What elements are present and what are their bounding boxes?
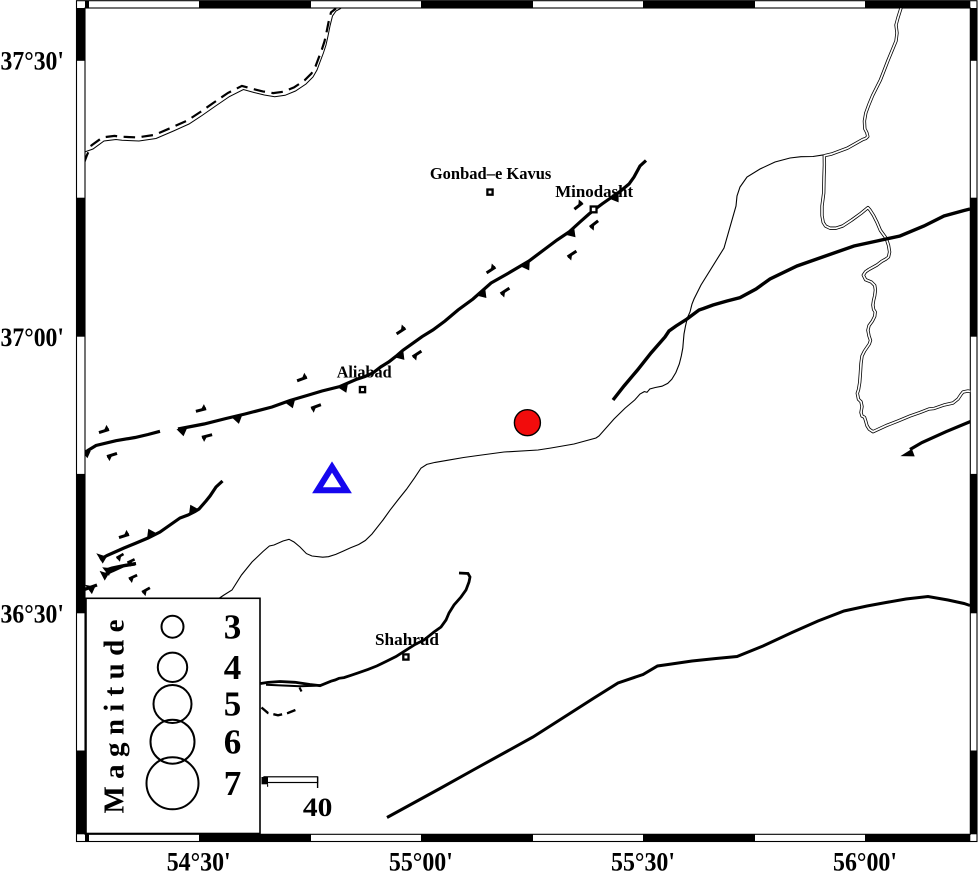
svg-text:6: 6 [224, 722, 242, 761]
svg-text:Gonbad–e Kavus: Gonbad–e Kavus [430, 164, 552, 183]
svg-text:40: 40 [303, 792, 333, 822]
svg-text:7: 7 [224, 764, 242, 803]
svg-text:56°00': 56°00' [833, 846, 897, 873]
svg-text:55°30': 55°30' [611, 846, 675, 873]
svg-text:36°30': 36°30' [1, 599, 65, 629]
svg-text:4: 4 [224, 648, 242, 687]
svg-text:55°00': 55°00' [389, 846, 453, 873]
svg-text:3: 3 [224, 607, 242, 646]
svg-text:54°30': 54°30' [167, 846, 231, 873]
svg-text:5: 5 [224, 685, 242, 724]
svg-text:Shahrud: Shahrud [375, 630, 440, 649]
svg-text:37°00': 37°00' [1, 322, 65, 352]
svg-text:37°30': 37°30' [1, 46, 65, 76]
